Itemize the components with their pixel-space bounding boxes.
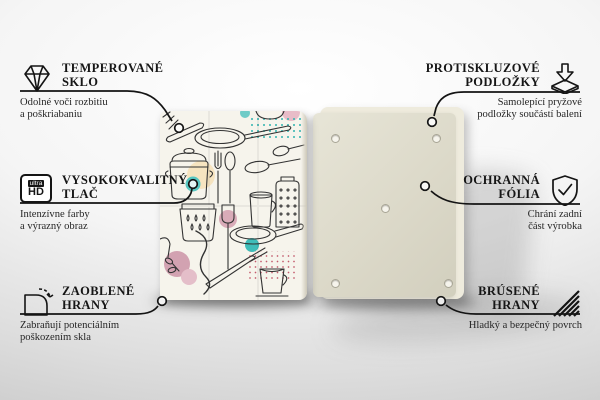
callout-description: Zabraňují potenciálním poškozením skla [20,320,202,344]
callout-ground-edges: BRÚSENÉ HRANY Hladký a bezpečný povrch [400,285,582,332]
callout-protective-film: OCHRANNÁ FÓLIA Chrání zadní část výrobka [400,174,582,233]
callout-description: Samolepící pryžové podložky součástí bal… [400,97,582,121]
callout-description: Hladký a bezpečný povrch [400,320,582,332]
anti-slip-pad [432,134,441,143]
callout-title: ZAOBLENÉ HRANY [62,285,202,312]
ultra-hd-icon: ultra HD [20,174,54,206]
product-infographic: TEMPEROVANÉ SKLO Odolné voči rozbitiu a … [0,0,600,400]
callout-description: Chrání zadní část výrobka [400,209,582,233]
callout-description: Odolné voči rozbitiu a poškriabaniu [20,97,202,121]
anti-slip-pads-icon [548,62,582,94]
callout-title: VYSOKOKVALITNÝ TLAČ [62,174,202,201]
rounded-corner-icon [20,285,54,317]
anti-slip-pad [331,279,340,288]
shield-check-icon [548,174,582,206]
anti-slip-pad [381,204,390,213]
anti-slip-pad [331,134,340,143]
brushed-edges-icon [548,285,582,317]
callout-rounded-edges: ZAOBLENÉ HRANY Zabraňují potenciálním po… [20,285,202,344]
callout-title: PROTISKLUZOVÉ PODLOŽKY [400,62,540,89]
callout-description: Intenzívne farby a výrazný obraz [20,209,202,233]
callout-high-quality-print: ultra HD VYSOKOKVALITNÝ TLAČ Intenzívne … [20,174,202,233]
callout-title: BRÚSENÉ HRANY [400,285,540,312]
front-board-side-edge [301,111,307,300]
callout-anti-slip-pads: PROTISKLUZOVÉ PODLOŽKY Samolepící pryžov… [400,62,582,121]
callout-title: TEMPEROVANÉ SKLO [62,62,202,89]
callout-title: OCHRANNÁ FÓLIA [400,174,540,201]
diamond-icon [20,62,54,94]
callout-tempered-glass: TEMPEROVANÉ SKLO Odolné voči rozbitiu a … [20,62,202,121]
